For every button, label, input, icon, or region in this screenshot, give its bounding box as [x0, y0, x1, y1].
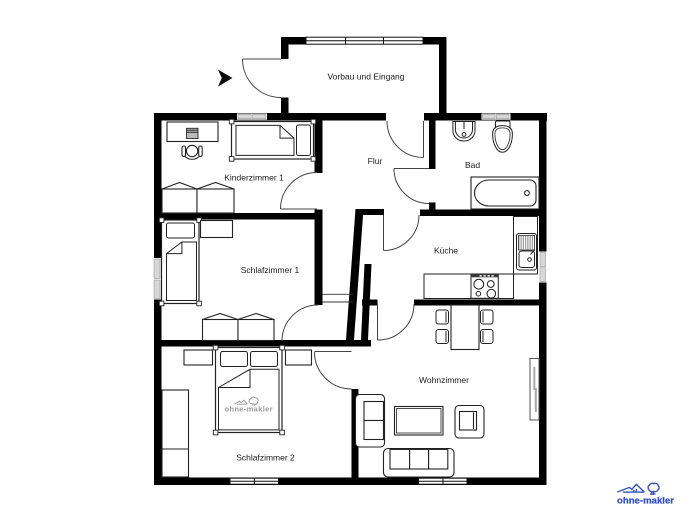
svg-text:ohne-makler: ohne-makler: [617, 495, 674, 506]
svg-text:Kinderzimmer 1: Kinderzimmer 1: [224, 173, 284, 183]
svg-text:Küche: Küche: [434, 246, 458, 256]
svg-text:Schlafzimmer 1: Schlafzimmer 1: [241, 265, 300, 275]
svg-text:Bad: Bad: [465, 160, 480, 170]
svg-text:Flur: Flur: [368, 156, 383, 166]
svg-text:Wohnzimmer: Wohnzimmer: [419, 375, 469, 385]
svg-text:Vorbau und Eingang: Vorbau und Eingang: [327, 72, 404, 82]
svg-text:Schlafzimmer 2: Schlafzimmer 2: [236, 453, 295, 463]
svg-text:ohne-makler: ohne-makler: [224, 404, 272, 413]
